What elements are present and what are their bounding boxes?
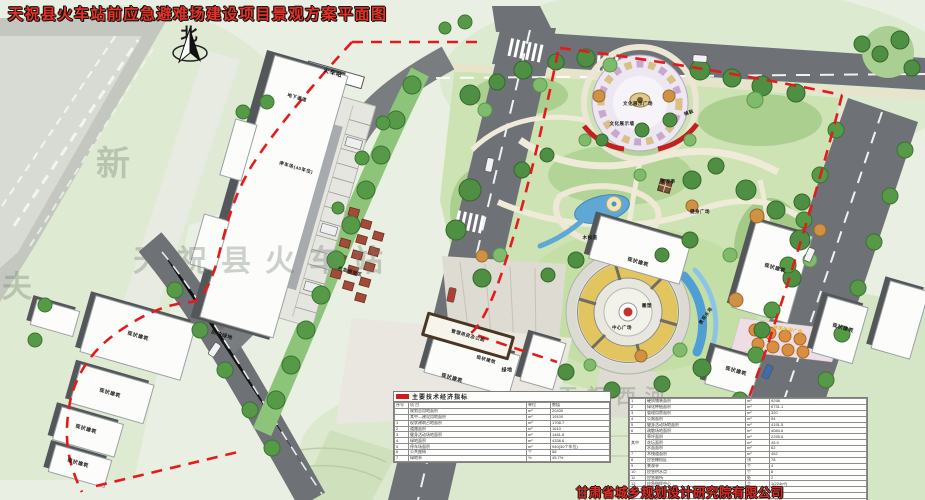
table-row: 7绿地率%45.7% — [395, 456, 610, 462]
design-institute-name: 甘肃省城乡规划设计研究院有限公司 — [576, 482, 784, 500]
indicator-table-left-box: 主要技术经济指标 序号项 目单位数值规划总用地面积m²20430其中—建设用地面… — [393, 391, 611, 463]
site-plan-drawing: 北 天祝县火车站 新 夫 天祝西河 火车站地下通道停车场(40车位)应急棚宿区现… — [0, 0, 925, 500]
sculpture — [624, 308, 633, 317]
indicator-table-title: 主要技术经济指标 — [412, 392, 468, 401]
drawing-title: 天祝县火车站前应急避难场建设项目景观方案平面图 — [8, 3, 388, 24]
indicator-table-title-row: 主要技术经济指标 — [394, 392, 610, 402]
pavilion — [658, 179, 673, 194]
red-legend-swatch — [396, 394, 409, 399]
indicator-table-left: 序号项 目单位数值规划总用地面积m²20430其中—建设用地面积m²191001… — [394, 402, 610, 462]
